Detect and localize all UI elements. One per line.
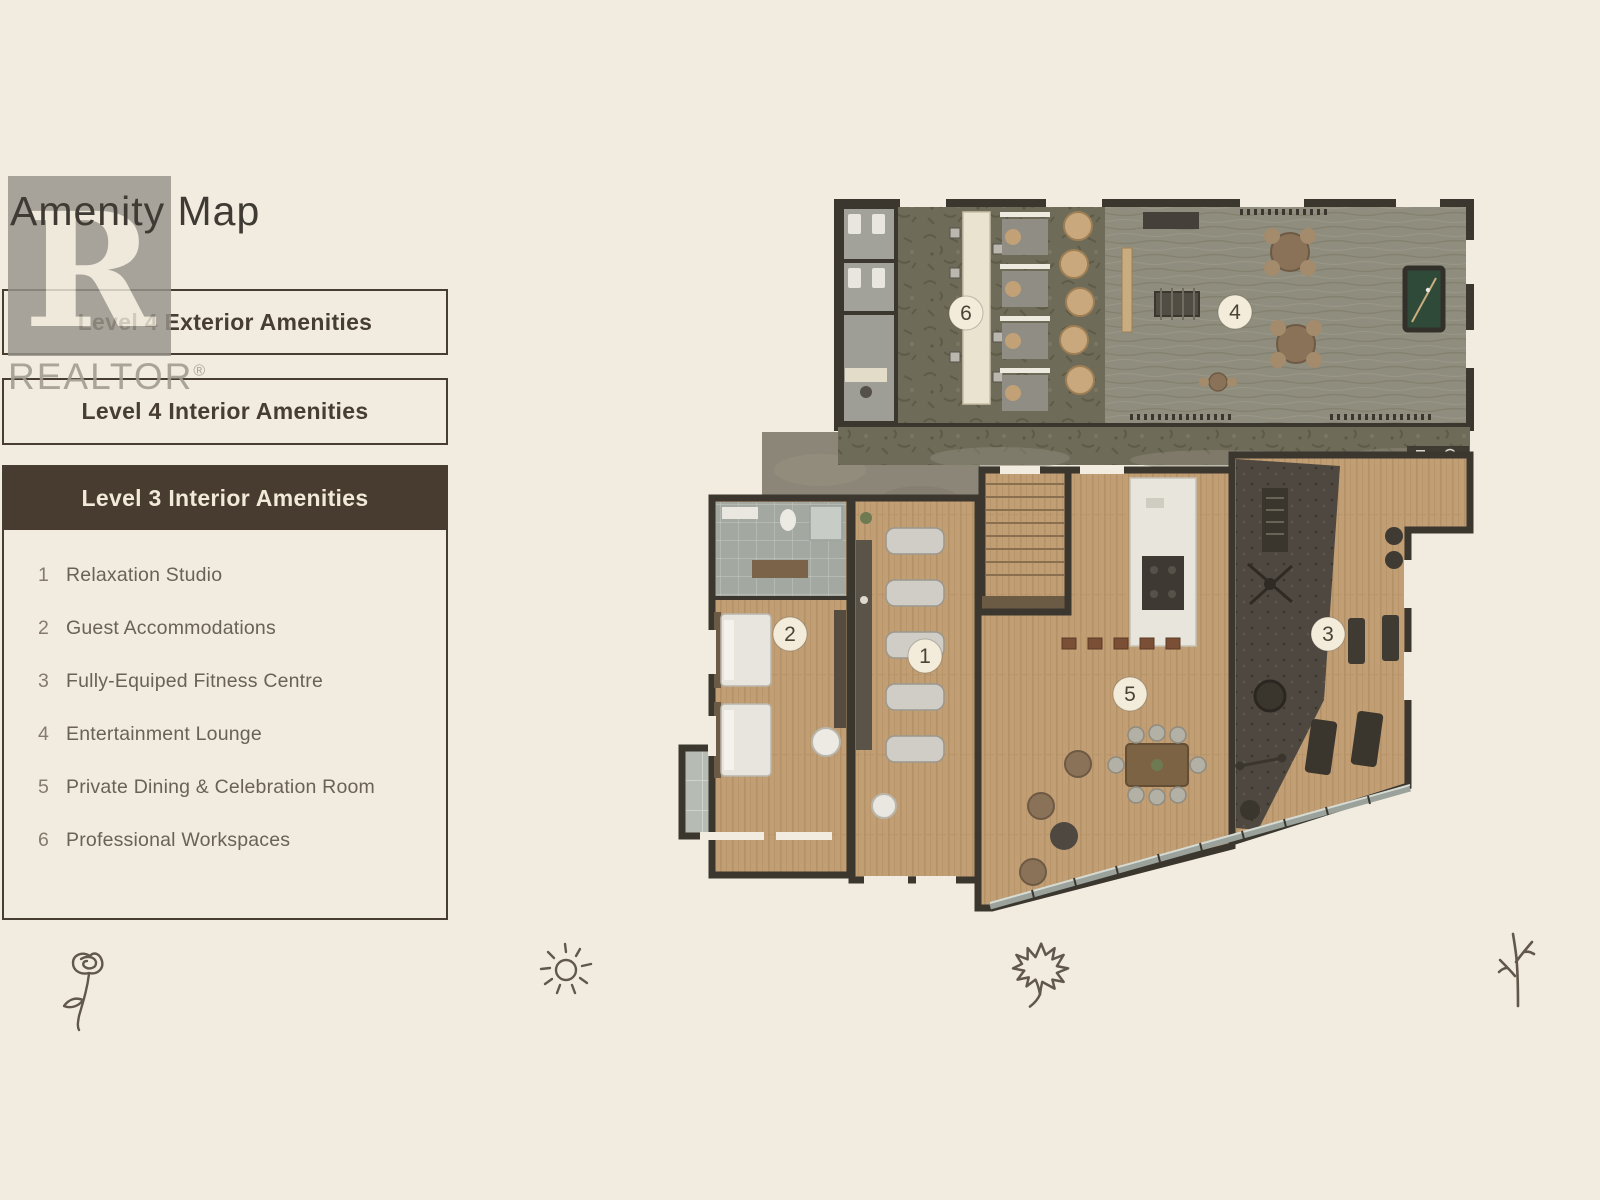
round-table (1270, 320, 1322, 368)
legend-item: 1 Relaxation Studio (38, 556, 430, 594)
marker-3: 3 (1311, 617, 1345, 651)
tab-level4-exterior[interactable]: Level 4 Exterior Amenities (2, 289, 448, 355)
legend-item-label: Entertainment Lounge (66, 715, 262, 753)
sun-icon (534, 936, 598, 1005)
legend-item-number: 5 (38, 768, 66, 806)
upper-wing (838, 199, 1474, 427)
tab-level4-interior[interactable]: Level 4 Interior Amenities (2, 378, 448, 445)
legend-item: 5 Private Dining & Celebration Room (38, 768, 430, 806)
bed (714, 702, 771, 778)
legend-item-label: Professional Workspaces (66, 821, 290, 859)
page-title: Amenity Map (10, 188, 260, 235)
legend-item-number: 2 (38, 609, 66, 647)
legend-item: 3 Fully-Equiped Fitness Centre (38, 662, 430, 700)
rose-icon (58, 946, 122, 1043)
svg-text:6: 6 (960, 302, 972, 325)
legend-item: 4 Entertainment Lounge (38, 715, 430, 753)
legend-item: 6 Professional Workspaces (38, 821, 430, 859)
tab-level4-interior-label: Level 4 Interior Amenities (82, 398, 369, 425)
fitness-centre (1232, 455, 1470, 842)
legend-item-label: Guest Accommodations (66, 609, 276, 647)
svg-text:1: 1 (919, 645, 931, 668)
legend-item-label: Relaxation Studio (66, 556, 222, 594)
legend-item-number: 3 (38, 662, 66, 700)
svg-text:4: 4 (1229, 301, 1241, 324)
legend-item-number: 1 (38, 556, 66, 594)
foosball-table (1155, 288, 1199, 320)
marker-2: 2 (773, 617, 807, 651)
branch-icon (1486, 924, 1546, 1013)
guest-suite (712, 498, 850, 875)
legend-item-number: 4 (38, 715, 66, 753)
tab-level4-exterior-label: Level 4 Exterior Amenities (78, 309, 373, 336)
floorplan: 6 4 2 1 3 5 (676, 195, 1490, 940)
maple-leaf-icon (1004, 938, 1076, 1015)
amenity-map-page: { "page": { "title": "Amenity Map" }, "w… (0, 0, 1600, 1200)
legend-item: 2 Guest Accommodations (38, 609, 430, 647)
relaxation-studio (852, 498, 978, 880)
svg-text:3: 3 (1322, 623, 1334, 646)
stairs (982, 470, 1068, 612)
legend-item-label: Fully-Equiped Fitness Centre (66, 662, 323, 700)
marker-4: 4 (1218, 295, 1252, 329)
svg-text:5: 5 (1124, 683, 1136, 706)
round-table (1264, 228, 1316, 276)
legend-item-label: Private Dining & Celebration Room (66, 768, 375, 806)
kitchen-island (1130, 478, 1196, 646)
legend-item-number: 6 (38, 821, 66, 859)
tab-level3-interior-label: Level 3 Interior Amenities (82, 485, 369, 512)
marker-5: 5 (1113, 677, 1147, 711)
marker-6: 6 (949, 296, 983, 330)
marker-1: 1 (908, 639, 942, 673)
bed (714, 612, 771, 688)
svg-text:2: 2 (784, 623, 796, 646)
small-offices (842, 207, 896, 423)
pool-table (1405, 268, 1443, 330)
level3-amenities-panel: Level 3 Interior Amenities 1 Relaxation … (2, 465, 448, 920)
amenities-legend: 1 Relaxation Studio 2 Guest Accommodatio… (4, 530, 446, 859)
tab-level3-interior[interactable]: Level 3 Interior Amenities (4, 467, 446, 530)
